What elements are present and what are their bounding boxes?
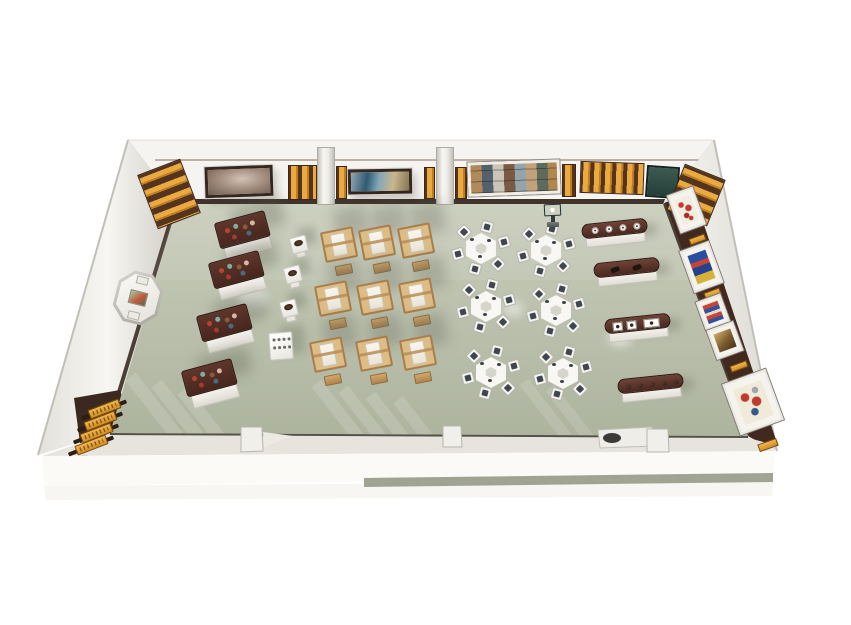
console-pictures[interactable] [604,313,672,344]
chair-seat [575,301,582,308]
console-knob [626,384,631,389]
console-artifacts[interactable] [593,257,661,288]
table-item [545,300,549,303]
chair-seat [481,390,488,397]
loom-4[interactable] [313,280,354,331]
chair[interactable] [480,219,495,234]
loom-2[interactable] [357,224,398,275]
table-item [552,241,556,244]
artifact-dot [227,263,233,269]
chair[interactable] [455,304,470,319]
console-knob [649,382,654,387]
hex-table-1[interactable] [452,222,510,276]
chair[interactable] [472,320,487,335]
framed-photo-collage[interactable] [467,159,560,196]
hex-table-center [540,245,552,256]
chair[interactable] [532,264,547,279]
chair[interactable] [521,226,538,243]
wall-pillar-b [436,147,454,205]
cube-dot [272,338,275,341]
art-label-3 [729,360,748,373]
loom-1[interactable] [319,226,360,277]
chair[interactable] [456,224,473,241]
loom-bench[interactable] [413,371,432,384]
chair-seat [471,266,478,273]
chair-seat [542,353,550,361]
console-artifact [610,266,620,274]
hex-table-center [485,367,497,378]
loom-bench[interactable] [370,316,389,329]
gold-slat-strip-b2 [455,167,467,199]
art-label-4 [757,438,779,452]
table-item [483,313,487,316]
cube-dot [273,346,276,349]
hex-table-center [475,243,487,254]
chair-seat [454,250,461,257]
loom-6[interactable] [397,277,438,328]
chair[interactable] [461,282,478,299]
artifact-dot [224,317,230,323]
stand-foot [295,251,306,259]
hex-table-3[interactable] [457,280,515,334]
chair[interactable] [490,343,505,358]
chair-seat [536,268,543,275]
framed-mini-picture [643,318,660,329]
artifact-dot [216,368,222,374]
chair-seat [460,228,468,236]
teacup [605,225,613,233]
table-item [480,362,484,365]
chair-seat [464,374,471,381]
gold-slat-panel-a [288,165,317,200]
stand-foot [289,281,300,289]
framed-photo-pottery[interactable] [204,165,273,198]
loom-3[interactable] [396,222,437,273]
chair[interactable] [531,286,548,303]
console-cups[interactable] [581,218,649,249]
loom-bench[interactable] [328,317,347,330]
artifact-dot [249,220,255,226]
console-knob [661,380,666,385]
cube-pedestal-1[interactable] [268,331,294,361]
chair-seat [553,391,560,398]
table-item [543,257,547,260]
artifact-stand-3[interactable] [278,298,300,323]
chair-seat [489,281,496,288]
cube-dot [283,346,286,349]
artifact-dot [236,264,242,270]
framed-mini-picture [626,320,637,330]
loom-bench[interactable] [369,372,388,385]
artifact-dot [246,230,252,236]
chair[interactable] [555,281,570,296]
loom-5[interactable] [355,279,396,330]
table-item [478,255,482,258]
artifact-stand-1[interactable] [288,234,310,259]
framed-painting-landscape[interactable] [348,168,412,194]
chair-seat [582,364,589,371]
artifact-dot [242,224,248,230]
table-item [569,364,573,367]
chair-seat [559,261,567,269]
artifact-dot [228,323,234,329]
chair[interactable] [562,237,577,252]
table-item [475,296,479,299]
table-item [488,379,492,382]
hex-table-center [550,305,562,316]
display-case-4[interactable] [181,358,242,410]
artifact-dot [233,223,239,229]
teacup [591,227,599,235]
artifact-dot [225,274,231,280]
chair[interactable] [572,297,587,312]
collage-image [471,163,558,194]
artifact-dot [213,327,219,333]
chair-seat [476,324,483,331]
chair[interactable] [549,387,564,402]
chair-seat [565,241,572,248]
table-item [497,363,501,366]
chair-seat [465,286,473,294]
artifact-dot [200,371,206,377]
cube-dot [278,346,281,349]
teacup [619,224,627,232]
wall-art-blue-textile[interactable] [679,241,723,293]
artifact-dot [224,228,230,234]
red-art-image [674,195,699,226]
chair-seat [529,312,536,319]
cube-dot [277,338,280,341]
chair[interactable] [466,348,483,365]
artifact-dot [243,260,249,266]
console-knob [637,383,642,388]
loom-bench[interactable] [323,373,342,386]
artifact-dot [198,382,204,388]
loom-bench[interactable] [372,261,391,274]
chair-seat [470,352,478,360]
chair-seat [525,230,533,238]
table-item [562,301,566,304]
chair-seat [500,239,507,246]
loom-bench[interactable] [411,259,430,272]
chair-seat [546,328,553,335]
hex-table-5[interactable] [462,346,520,400]
chair[interactable] [467,262,482,277]
artifact-dot [209,372,215,378]
chair[interactable] [525,308,540,323]
hex-table-center [557,368,569,379]
chair[interactable] [579,360,594,375]
table-item [553,317,557,320]
multi-art-image [702,300,723,323]
artifact-dot [206,321,212,327]
landscape-image [351,171,409,191]
chair[interactable] [562,344,577,359]
cube-dot [288,345,291,348]
artifact-dot [191,376,197,382]
gold-slat-panel-c [579,161,644,195]
corner-slat-panel-left [137,159,201,230]
wall-art-figure-painting[interactable] [722,369,784,435]
hex-table-6[interactable] [534,347,592,401]
figures-art-image [732,379,773,424]
artifact-stand-2[interactable] [282,264,304,289]
chair-seat [576,384,584,392]
table-item [487,239,491,242]
chair[interactable] [538,349,555,366]
chair-seat [494,259,502,267]
table-item [535,240,539,243]
teacup [633,222,641,230]
chair[interactable] [460,370,475,385]
table-item [492,297,496,300]
loom-8[interactable] [354,335,395,386]
loom-7[interactable] [308,336,349,387]
artifact-dot [215,316,221,322]
blue-art-image [687,250,715,284]
wall-pillar-a [317,147,335,205]
hex-table-center [480,301,492,312]
chair[interactable] [450,246,465,261]
chair[interactable] [502,293,517,308]
chair-seat [494,347,501,354]
framed-mini-picture [612,322,623,332]
loom-bench[interactable] [412,314,431,327]
kiosk-base [547,222,559,227]
display-case-3[interactable] [196,303,257,355]
chair-seat [505,297,512,304]
artifact-dot [231,234,237,240]
chair-seat [499,317,507,325]
cube-dot [287,337,290,340]
chair[interactable] [542,324,557,339]
chair-seat [559,285,566,292]
table-item [552,363,556,366]
chair[interactable] [497,235,512,250]
chair-seat [504,383,512,391]
chair[interactable] [485,277,500,292]
chair-seat [569,321,577,329]
hex-table-2[interactable] [517,224,575,278]
chair[interactable] [477,386,492,401]
loom-9[interactable] [398,334,439,385]
cube-dot [282,338,285,341]
chair-seat [459,308,466,315]
loom-bench[interactable] [334,263,353,276]
chair[interactable] [532,371,547,386]
gold-slat-strip-a2 [336,166,347,199]
chair-seat [536,375,543,382]
display-case-2[interactable] [208,250,269,302]
table-item [470,238,474,241]
console-artifact [632,263,642,271]
gold-slat-strip-c1 [562,164,576,197]
artifact-dot [240,270,246,276]
table-item [560,380,564,383]
pottery-image [208,168,271,195]
chair-seat [510,363,517,370]
room-3d-render [0,0,851,625]
artifact-dot [231,313,237,319]
artifact-dot [218,268,224,274]
stand-foot [285,315,296,323]
chair-seat [484,223,491,230]
ornate-wall-medallion[interactable] [109,267,166,329]
artifact-dot [213,378,219,384]
chair-seat [519,252,526,259]
console-knob [673,379,678,384]
chair[interactable] [507,359,522,374]
chair-seat [566,348,573,355]
info-kiosk[interactable] [543,204,563,228]
chair[interactable] [515,248,530,263]
gold-art-image [713,328,736,353]
hex-table-4[interactable] [527,284,585,338]
chair-seat [535,290,543,298]
scene-objects [0,0,851,625]
console-knobs[interactable] [617,373,685,404]
gold-slat-strip-b1 [424,167,435,199]
